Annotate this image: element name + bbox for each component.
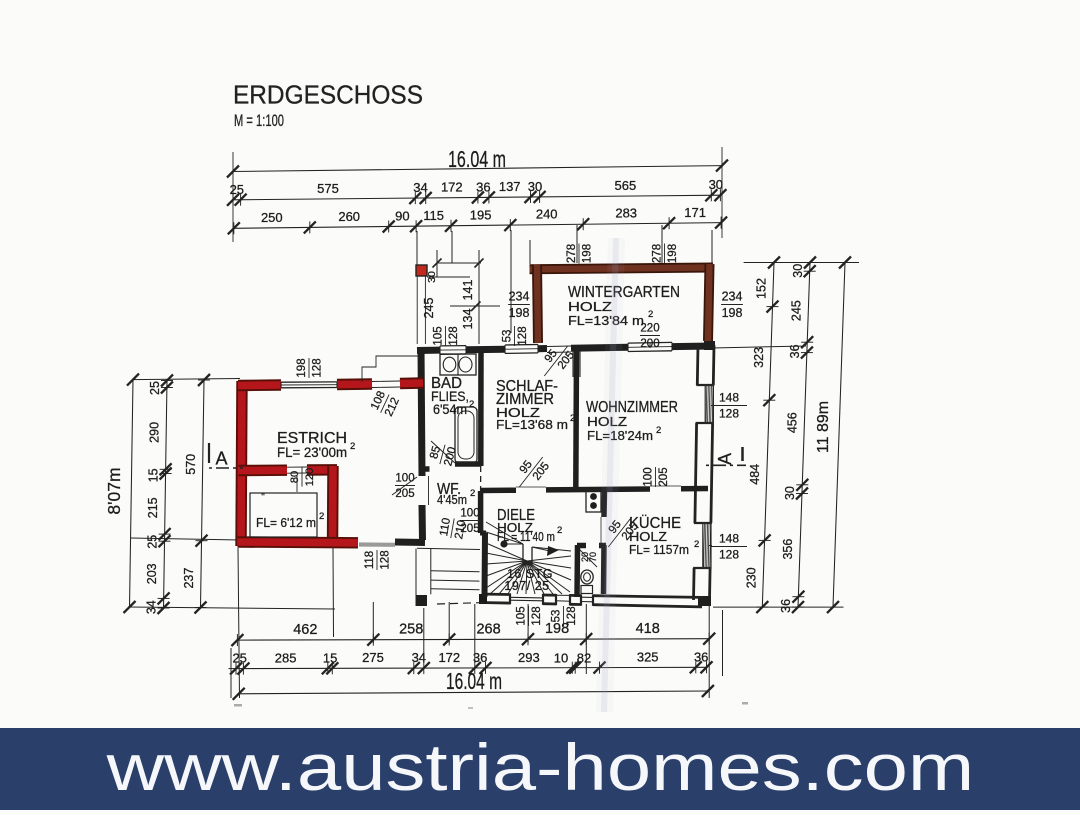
- svg-text:565: 565: [615, 178, 637, 193]
- svg-text:30: 30: [426, 271, 438, 283]
- svg-text:237: 237: [182, 568, 196, 589]
- svg-text:203: 203: [145, 563, 159, 584]
- svg-text:575: 575: [317, 181, 339, 196]
- svg-text:2: 2: [656, 425, 661, 436]
- svg-text:11 89m: 11 89m: [815, 401, 832, 453]
- svg-text:234: 234: [509, 290, 530, 304]
- svg-text:205: 205: [395, 488, 414, 500]
- svg-text:53: 53: [502, 330, 514, 343]
- svg-text:293: 293: [518, 650, 540, 665]
- svg-text:245: 245: [790, 300, 804, 321]
- svg-text:198: 198: [667, 244, 679, 263]
- svg-text:290: 290: [147, 422, 161, 443]
- svg-text:2: 2: [557, 525, 562, 536]
- svg-text:250: 250: [261, 210, 283, 225]
- svg-text:205: 205: [658, 467, 670, 486]
- svg-text:82: 82: [577, 650, 591, 665]
- svg-text:137: 137: [499, 179, 521, 194]
- svg-text:100: 100: [643, 467, 655, 486]
- svg-text:172: 172: [438, 650, 460, 665]
- svg-text:197/ 25: 197/ 25: [504, 579, 549, 593]
- svg-text:A: A: [215, 449, 227, 469]
- svg-text:141: 141: [461, 280, 475, 301]
- svg-text:260: 260: [338, 209, 360, 224]
- svg-text:128: 128: [448, 326, 460, 345]
- svg-text:152: 152: [754, 278, 768, 299]
- svg-text:HOLZ: HOLZ: [568, 299, 612, 314]
- svg-text:240: 240: [536, 207, 558, 222]
- svg-text:": ": [261, 492, 265, 503]
- svg-text:2: 2: [319, 511, 324, 522]
- svg-text:15: 15: [147, 468, 161, 482]
- svg-text:258: 258: [399, 622, 423, 638]
- svg-text:2: 2: [694, 539, 699, 550]
- svg-text:105: 105: [433, 326, 445, 345]
- svg-text:418: 418: [636, 621, 660, 637]
- svg-text:128: 128: [517, 326, 529, 345]
- svg-text:198: 198: [296, 358, 308, 377]
- svg-text:234: 234: [722, 290, 743, 304]
- svg-text:275: 275: [362, 650, 384, 665]
- svg-text:2: 2: [469, 399, 474, 410]
- svg-text:268: 268: [476, 621, 500, 637]
- svg-text:356: 356: [781, 539, 795, 560]
- svg-text:230: 230: [744, 567, 758, 588]
- svg-text:FL= 23'00m: FL= 23'00m: [277, 445, 347, 460]
- svg-text:570: 570: [184, 454, 198, 475]
- svg-text:8'07m: 8'07m: [104, 467, 124, 514]
- svg-text:70: 70: [588, 552, 598, 562]
- svg-text:220: 220: [640, 323, 659, 335]
- svg-text:2: 2: [470, 488, 475, 499]
- svg-text:171: 171: [684, 205, 706, 220]
- svg-text:115: 115: [423, 208, 444, 223]
- svg-text:25: 25: [230, 182, 244, 197]
- svg-text:456: 456: [786, 412, 800, 433]
- svg-text:195: 195: [470, 207, 492, 222]
- svg-text:FL= 6'12 m: FL= 6'12 m: [256, 515, 316, 530]
- svg-text:128: 128: [311, 358, 323, 377]
- svg-text:278: 278: [652, 244, 664, 263]
- svg-text:10: 10: [554, 651, 568, 666]
- svg-text:25: 25: [232, 651, 246, 666]
- svg-text:FL= 1157m: FL= 1157m: [629, 542, 689, 557]
- svg-text:FL=13'68 m: FL=13'68 m: [496, 417, 568, 432]
- svg-text:285: 285: [275, 651, 297, 666]
- svg-text:278: 278: [566, 244, 578, 263]
- svg-text:15: 15: [323, 650, 337, 665]
- svg-text:198: 198: [722, 306, 743, 320]
- svg-text:128: 128: [719, 406, 739, 420]
- svg-text:36: 36: [779, 599, 793, 613]
- svg-text:FL = 11'40 m: FL = 11'40 m: [497, 529, 555, 544]
- svg-text:148: 148: [719, 532, 739, 546]
- svg-text:30: 30: [783, 486, 797, 500]
- svg-text:198: 198: [581, 244, 593, 263]
- svg-text:245: 245: [422, 298, 436, 319]
- svg-text:198: 198: [509, 306, 530, 320]
- svg-text:128: 128: [379, 550, 391, 569]
- svg-text:30: 30: [791, 264, 805, 278]
- svg-text:105: 105: [516, 606, 528, 625]
- svg-text:2: 2: [350, 441, 355, 452]
- svg-text:128: 128: [719, 547, 739, 561]
- svg-text:128: 128: [566, 606, 578, 625]
- svg-text:16.04 m: 16.04 m: [446, 668, 502, 694]
- svg-text:325: 325: [637, 650, 659, 665]
- svg-text:80: 80: [289, 471, 301, 483]
- svg-text:6'54m: 6'54m: [433, 402, 467, 417]
- svg-text:118: 118: [364, 551, 376, 569]
- svg-text:128: 128: [531, 606, 543, 625]
- svg-text:90: 90: [395, 208, 409, 223]
- svg-text:25: 25: [146, 535, 160, 549]
- svg-text:134: 134: [461, 309, 475, 330]
- svg-text:53: 53: [551, 610, 563, 623]
- svg-text:4'45m: 4'45m: [437, 492, 467, 507]
- svg-text:205: 205: [460, 523, 479, 535]
- svg-text:M = 1:100: M = 1:100: [234, 112, 284, 130]
- svg-text:120: 120: [304, 468, 316, 486]
- svg-text:16.04 m: 16.04 m: [448, 146, 506, 172]
- svg-text:100: 100: [395, 473, 414, 485]
- svg-text:ERDGESCHOSS: ERDGESCHOSS: [233, 80, 423, 110]
- svg-text:2: 2: [648, 309, 653, 320]
- svg-text:100: 100: [460, 508, 479, 520]
- svg-text:25: 25: [148, 381, 162, 395]
- svg-text:2: 2: [570, 413, 575, 424]
- svg-text:323: 323: [752, 347, 766, 368]
- svg-text:215: 215: [146, 497, 160, 518]
- svg-text:283: 283: [615, 206, 637, 221]
- svg-text:148: 148: [719, 391, 739, 405]
- svg-text:462: 462: [293, 622, 317, 638]
- svg-text:484: 484: [748, 464, 762, 485]
- svg-text:A: A: [715, 453, 735, 465]
- svg-text:172: 172: [441, 180, 463, 195]
